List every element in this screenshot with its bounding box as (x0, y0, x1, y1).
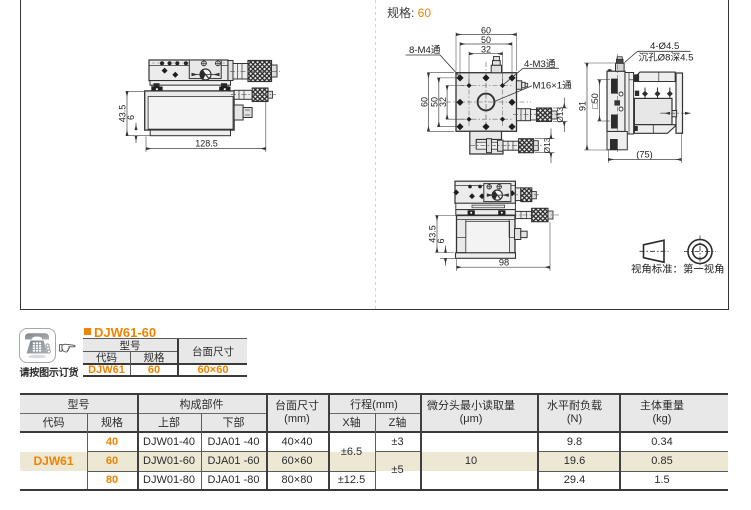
svg-text:60: 60 (481, 25, 491, 35)
svg-text:98: 98 (499, 257, 509, 267)
svg-text:视角标准：第一视角: 视角标准：第一视角 (631, 262, 725, 275)
svg-text:60: 60 (419, 97, 429, 107)
svg-text:沉孔Ø8深4.5: 沉孔Ø8深4.5 (639, 51, 694, 63)
svg-text:32: 32 (438, 97, 448, 107)
svg-text:128.5: 128.5 (195, 138, 218, 148)
svg-text:Ø13: Ø13 (555, 107, 565, 123)
svg-text:□50: □50 (590, 93, 600, 108)
svg-text:6: 6 (436, 238, 446, 243)
svg-text:(75): (75) (636, 150, 653, 160)
svg-text:M16×1通: M16×1通 (533, 81, 573, 92)
svg-text:91: 91 (578, 101, 588, 111)
svg-text:Ø13: Ø13 (542, 137, 552, 153)
svg-text:50: 50 (481, 35, 491, 45)
svg-text:32: 32 (481, 45, 491, 55)
svg-text:8-M4通: 8-M4通 (409, 45, 441, 56)
svg-text:4-Ø4.5: 4-Ø4.5 (650, 41, 679, 52)
svg-text:6: 6 (126, 115, 136, 120)
